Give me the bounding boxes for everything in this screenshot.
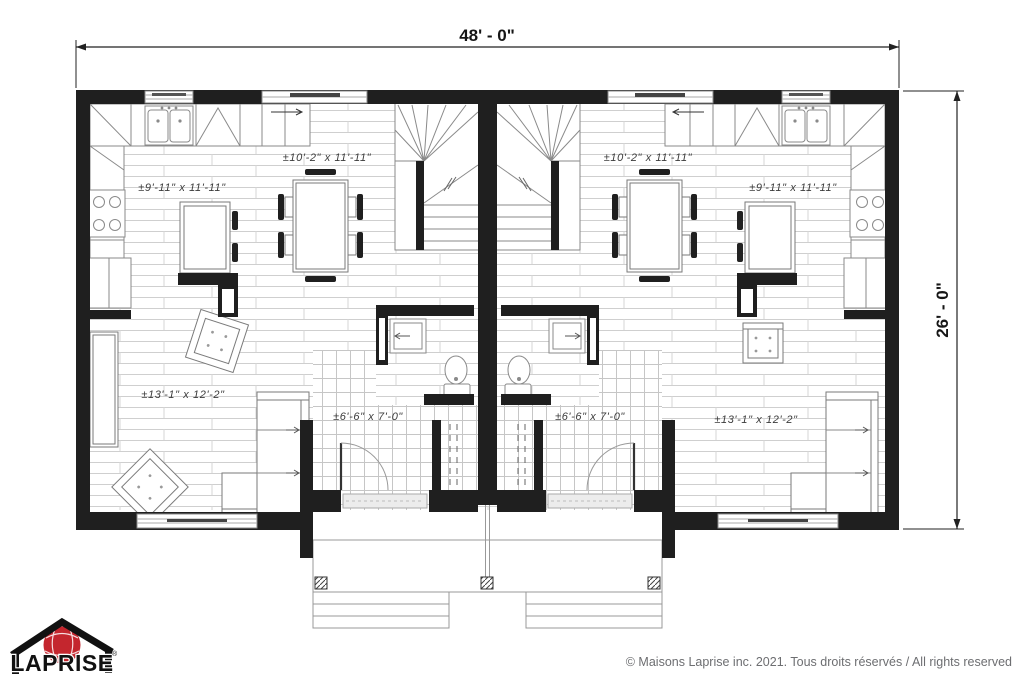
fridge-right — [844, 258, 888, 308]
stool — [737, 211, 743, 230]
living-label-left: ±13'-1" x 12'-2" — [141, 389, 225, 401]
living-window-right — [718, 514, 838, 528]
width-dimension-label: 48' - 0" — [459, 26, 515, 45]
logo-wordmark: LAPRISE — [10, 650, 113, 676]
vestibule-tile-right — [599, 350, 662, 510]
fridge-left — [87, 258, 131, 308]
dining-label-left: ±10'-2" x 11'-11" — [283, 152, 372, 164]
living-window-left — [137, 514, 257, 528]
dining-label-right: ±10'-2" x 11'-11" — [604, 152, 693, 164]
kitchen-sink-left — [145, 106, 193, 145]
kitchen-sink-right — [782, 106, 830, 145]
kitchen-label-right: ±9'-11" x 11'-11" — [749, 182, 837, 194]
stool — [232, 211, 238, 230]
floor-plan-page: 48' - 0" 26' - 0" ±9'-11" x 11'-11" ±10'… — [0, 0, 1024, 683]
porch-post — [648, 577, 660, 589]
living-label-right: ±13'-1" x 12'-2" — [714, 414, 798, 426]
height-dimension-label: 26' - 0" — [933, 282, 952, 338]
party-wall — [478, 90, 497, 505]
laprise-logo: LAPRISE ® — [10, 622, 118, 676]
stove-right — [850, 190, 888, 237]
dimension-width: 48' - 0" — [76, 26, 899, 88]
kitchen-label-left: ±9'-11" x 11'-11" — [138, 182, 226, 194]
entry-steps-right — [526, 592, 662, 628]
floor-plan-svg: 48' - 0" 26' - 0" ±9'-11" x 11'-11" ±10'… — [0, 0, 1024, 683]
stool — [737, 243, 743, 262]
kitchen-window-left — [145, 91, 193, 103]
stool — [232, 243, 238, 262]
vestibule-label-right: ±6'-6" x 7'-0" — [555, 411, 625, 423]
porch-post — [481, 577, 493, 589]
registered-trademark: ® — [112, 650, 118, 658]
island-left — [180, 202, 238, 273]
vestibule-tile-left — [313, 350, 376, 510]
copyright-text: © Maisons Laprise inc. 2021. Tous droits… — [626, 655, 1012, 669]
porch — [313, 505, 662, 628]
stove-left — [87, 190, 125, 237]
armchair-right — [743, 323, 783, 363]
entry-steps-left — [313, 592, 449, 628]
island-right — [737, 202, 795, 273]
kitchen-window-right — [782, 91, 830, 103]
porch-post — [315, 577, 327, 589]
dimension-height: 26' - 0" — [903, 91, 964, 529]
vestibule-label-left: ±6'-6" x 7'-0" — [333, 411, 403, 423]
